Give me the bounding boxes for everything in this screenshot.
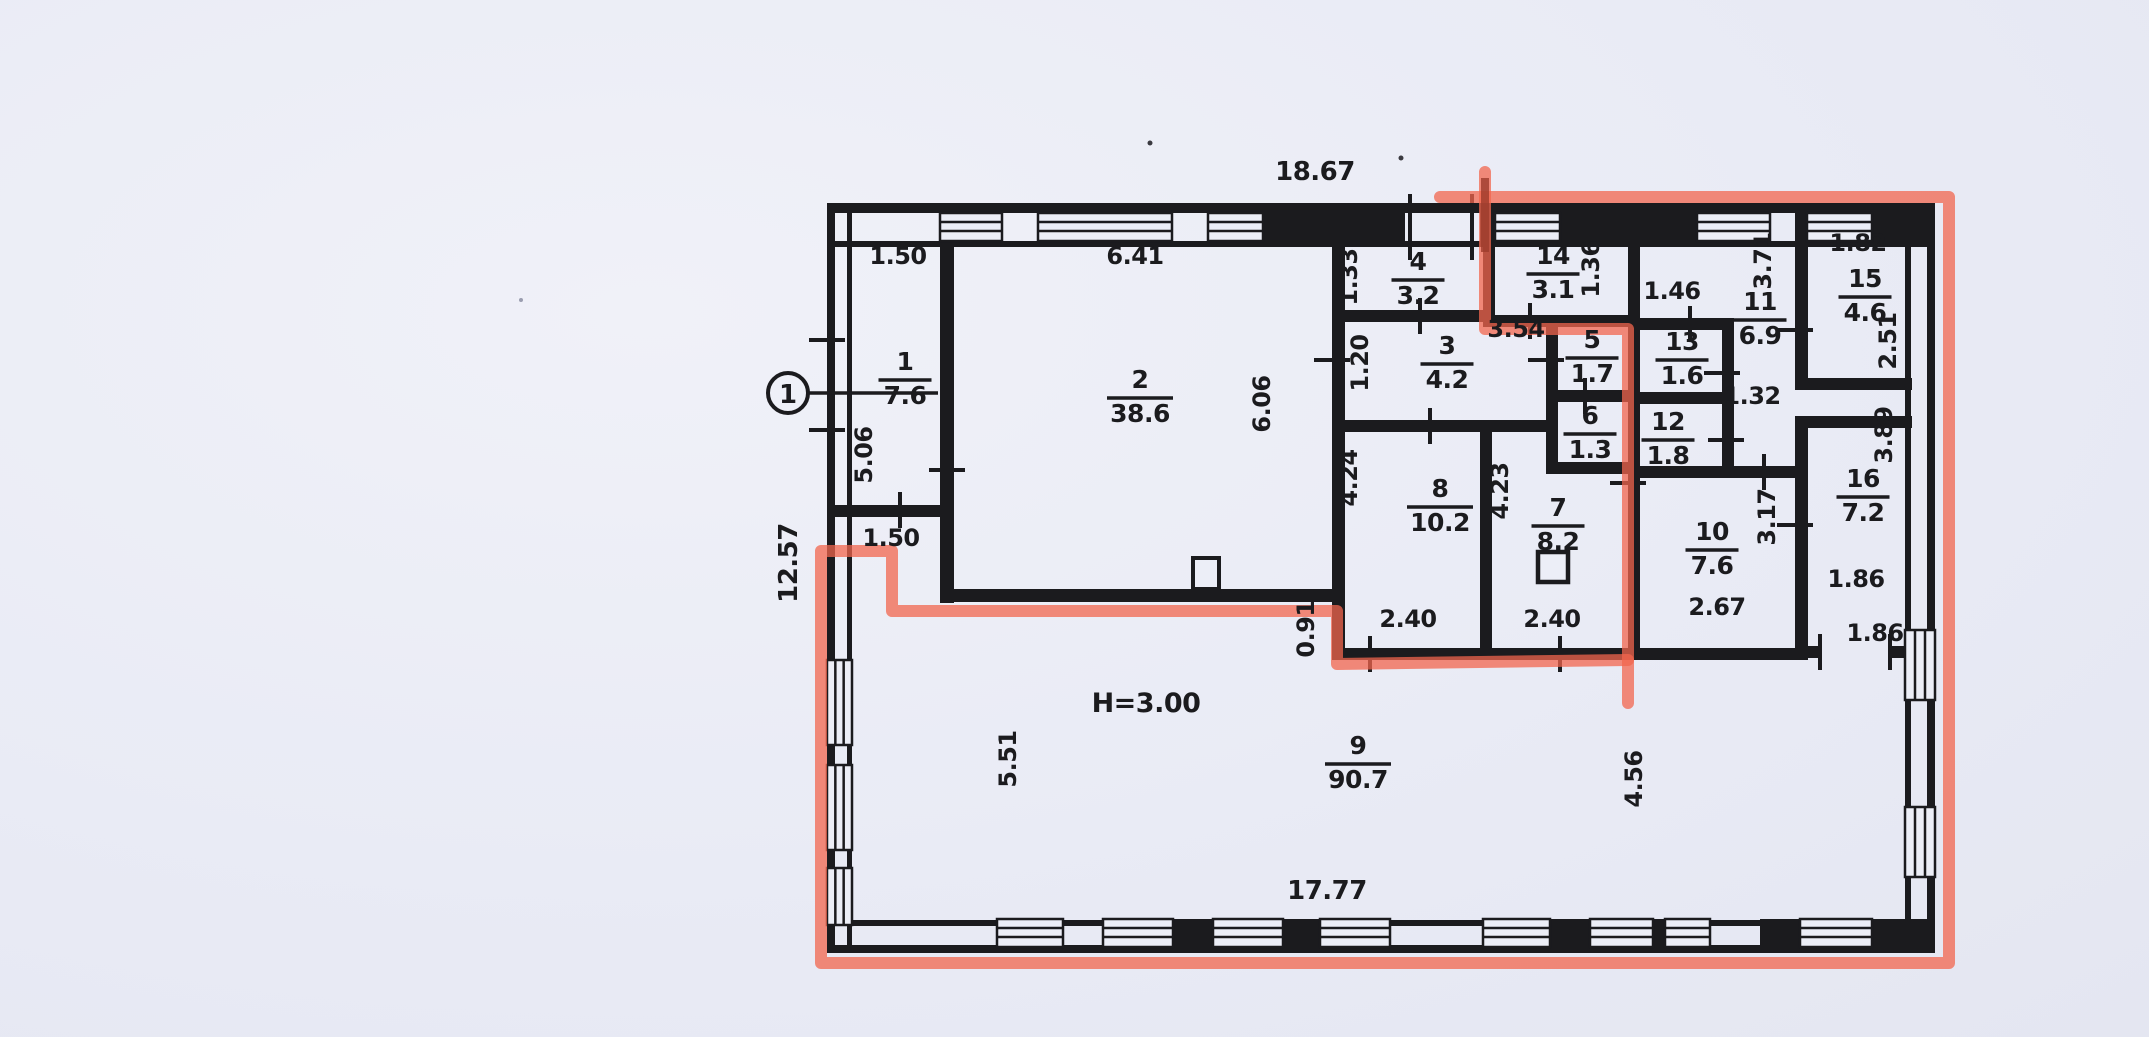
window (1590, 919, 1653, 947)
wall-segment (1628, 648, 1795, 660)
wall-segment (940, 589, 1345, 602)
dimension-label: 2.51 (1874, 312, 1902, 369)
wall-segment (1332, 310, 1495, 322)
room-number: 7 (1550, 493, 1567, 522)
wall-segment (1332, 420, 1554, 432)
room-area: 1.7 (1571, 359, 1614, 388)
dimension-label: 2.67 (1688, 593, 1745, 621)
room-area: 1.8 (1647, 441, 1690, 470)
room-number: 10 (1695, 517, 1729, 546)
dimension-label: 2.40 (1523, 605, 1580, 633)
window (1103, 919, 1173, 947)
wall-segment (1173, 919, 1213, 953)
dimension-label: 5.06 (850, 426, 878, 483)
dimension-label: 4.56 (1620, 750, 1648, 807)
dimension-label: 1.33 (1335, 248, 1363, 305)
room-label: 116.9 (1734, 287, 1787, 350)
dimension-label: 0.91 (1292, 600, 1320, 657)
dimension-label: 17.77 (1287, 876, 1367, 906)
dimension-label: 6.06 (1248, 375, 1276, 432)
columns-and-shafts (1193, 552, 1568, 589)
room-area: 4.2 (1426, 365, 1469, 394)
dimension-label: 1.86 (1827, 565, 1884, 593)
room-area: 1.3 (1569, 435, 1612, 464)
window (827, 868, 852, 925)
room-label: 17.6 (879, 347, 932, 410)
room-label: 121.8 (1642, 407, 1695, 470)
room-label: 43.2 (1392, 247, 1445, 310)
room-labels: 17.6238.634.243.251.761.378.2810.2990.71… (879, 241, 1892, 794)
room-label: 810.2 (1407, 474, 1473, 537)
window (1800, 919, 1872, 947)
window (827, 660, 852, 745)
room-number: 12 (1651, 407, 1685, 436)
window (1483, 919, 1550, 947)
room-number: 13 (1665, 327, 1699, 356)
window (1905, 807, 1935, 877)
axis-marker-number: 1 (779, 380, 797, 410)
room-number: 4 (1410, 247, 1427, 276)
scanned-floor-plan: 1 17.6238.634.243.251.761.378.2810.2990.… (0, 0, 2149, 1037)
ceiling-height-note: H=3.00 (1092, 688, 1201, 719)
red-highlight-annotation (821, 172, 1949, 963)
dimension-label: 1.20 (1346, 334, 1374, 391)
dimension-label: 1.82 (1829, 229, 1886, 257)
room-number: 3 (1439, 331, 1456, 360)
room-number: 15 (1848, 264, 1882, 293)
room-area: 7.6 (884, 381, 927, 410)
window (1208, 213, 1263, 241)
room-label: 61.3 (1564, 401, 1617, 464)
room-area: 7.2 (1842, 498, 1885, 527)
wall-segment (1550, 919, 1590, 953)
room-area: 38.6 (1110, 399, 1170, 428)
wall-segment (1795, 646, 1820, 658)
room-label: 143.1 (1527, 241, 1580, 304)
room-number: 2 (1132, 365, 1149, 394)
dimension-label: 3.54 (1487, 315, 1544, 343)
dimension-label: 3.71 (1749, 232, 1777, 289)
wall-segment (827, 505, 954, 517)
room-area: 1.6 (1661, 361, 1704, 390)
room-label: 238.6 (1107, 365, 1173, 428)
dimension-label: 1.46 (1643, 277, 1700, 305)
column (1193, 558, 1219, 589)
room-area: 8.2 (1537, 527, 1580, 556)
speck (1148, 141, 1153, 146)
room-label: 131.6 (1656, 327, 1709, 390)
dimension-label: 1.50 (869, 242, 926, 270)
dimension-label: 1.32 (1723, 382, 1780, 410)
dimension-label: 3.17 (1753, 488, 1781, 545)
vent-shaft (1538, 552, 1568, 582)
dimension-label: 2.40 (1379, 605, 1436, 633)
dimension-label: 6.41 (1106, 242, 1163, 270)
room-number: 9 (1350, 731, 1367, 760)
room-label: 107.6 (1686, 517, 1739, 580)
room-area: 10.2 (1410, 508, 1470, 537)
room-area: 6.9 (1739, 321, 1782, 350)
dimension-label: 4.24 (1335, 449, 1363, 506)
window (1038, 213, 1172, 241)
floor-plan-svg: 1 17.6238.634.243.251.761.378.2810.2990.… (0, 0, 2149, 1037)
room-area: 7.6 (1691, 551, 1734, 580)
room-area: 3.1 (1532, 275, 1575, 304)
window (1905, 630, 1935, 700)
wall-segment (1653, 919, 1665, 953)
window (1495, 213, 1560, 241)
window (997, 919, 1063, 947)
dimension-label: 5.51 (994, 730, 1022, 787)
dimension-label: 1.50 (862, 524, 919, 552)
window (1320, 919, 1390, 947)
room-number: 14 (1536, 241, 1570, 270)
room-number: 1 (897, 347, 914, 376)
dimension-label: 18.67 (1275, 157, 1355, 187)
room-number: 11 (1743, 287, 1777, 316)
room-number: 5 (1584, 325, 1601, 354)
room-area: 3.2 (1397, 281, 1440, 310)
window (1213, 919, 1283, 947)
dimension-label: 1.86 (1846, 619, 1903, 647)
room-number: 6 (1582, 401, 1599, 430)
speck (1399, 156, 1404, 161)
dimension-label: 12.57 (774, 523, 804, 603)
room-number: 8 (1432, 474, 1449, 503)
window (827, 765, 852, 850)
wall-segment (1640, 392, 1734, 404)
wall-segment (1283, 919, 1320, 953)
wall-segment (1795, 416, 1808, 660)
room-label: 78.2 (1532, 493, 1585, 556)
room-area: 90.7 (1328, 765, 1388, 794)
window (940, 213, 1002, 241)
wall-segment (1760, 919, 1800, 953)
wall-segment (1795, 378, 1912, 390)
wall-segment (1872, 919, 1930, 953)
room-label: 990.7 (1325, 731, 1391, 794)
room-number: 16 (1846, 464, 1880, 493)
window (1665, 919, 1710, 947)
room-label: 34.2 (1421, 331, 1474, 394)
wall-segment (940, 213, 954, 603)
dimension-label: 4.23 (1486, 462, 1514, 519)
dimension-label: 1.36 (1577, 240, 1605, 297)
speck (519, 298, 523, 302)
room-label: 167.2 (1837, 464, 1890, 527)
dimension-label: 3.89 (1870, 406, 1898, 463)
